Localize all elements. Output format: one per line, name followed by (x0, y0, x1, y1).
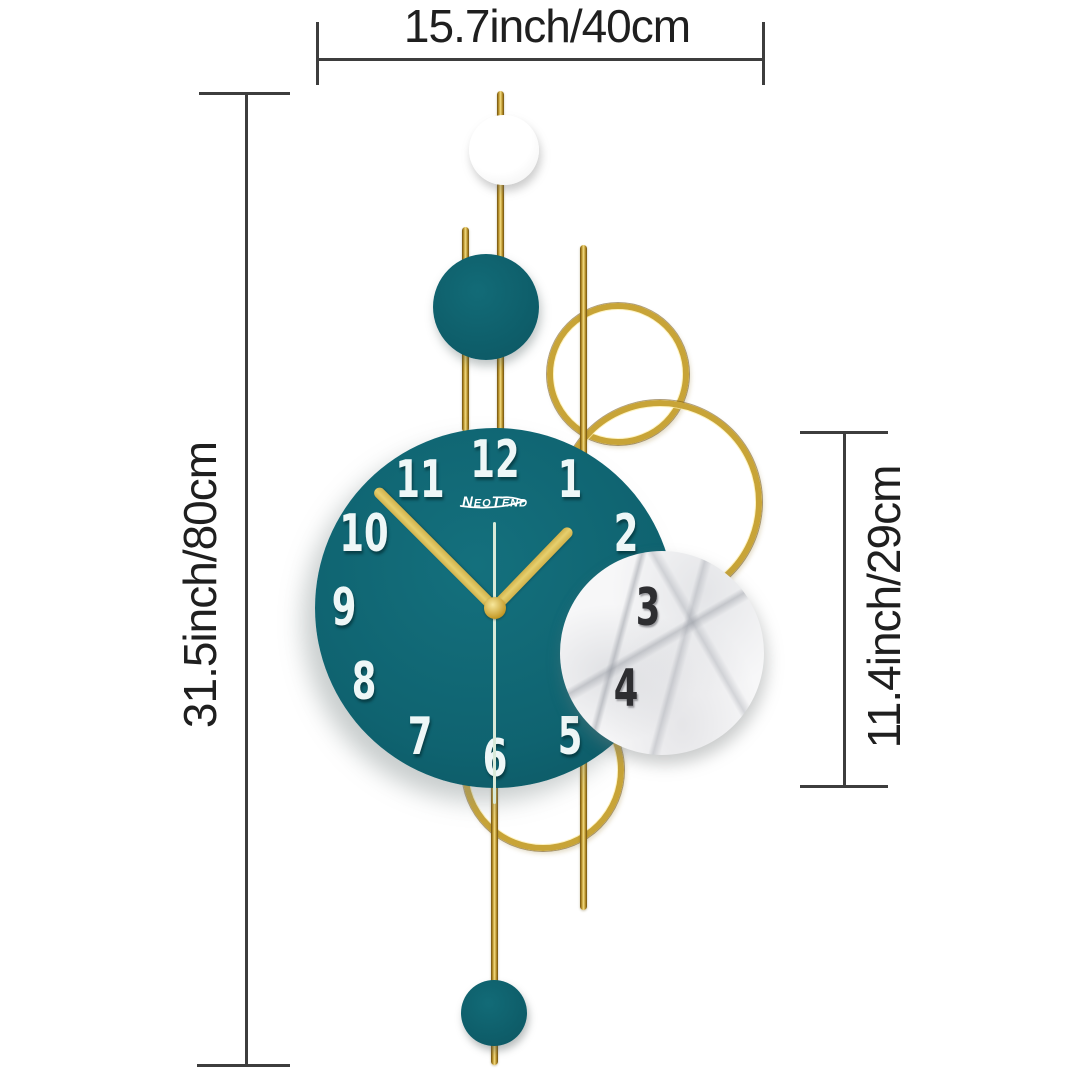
clock-numeral-2: 2 (614, 508, 639, 560)
clock-numeral-8: 8 (352, 656, 377, 708)
clock-numeral-10: 10 (339, 508, 388, 560)
second-hand (493, 522, 496, 804)
height-dimension-cap-top (199, 92, 290, 95)
clock-numeral-1: 1 (558, 454, 583, 506)
brand-logo: NeoTend (462, 494, 528, 511)
height-dimension-cap-bottom (197, 1064, 290, 1067)
width-dimension-line (317, 58, 764, 61)
clock-numeral-5: 5 (558, 711, 583, 763)
clock-center-hub (484, 597, 506, 619)
teal-accent-disc (433, 254, 539, 360)
product-dimension-diagram: 15.7inch/40cm 31.5inch/80cm 11.4inch/29c… (0, 0, 1080, 1080)
marble-accent-disc: 3 4 (560, 551, 764, 755)
hour-hand (491, 525, 575, 612)
clock-numeral-11: 11 (395, 454, 444, 506)
clock-height-dimension-cap-top (800, 431, 888, 434)
width-dimension-tick-right (762, 22, 765, 85)
height-dimension-line (245, 93, 248, 1067)
width-dimension-tick-left (316, 22, 319, 85)
clock-height-dimension-line (843, 432, 846, 788)
clock-numeral-12: 12 (470, 434, 519, 486)
height-dimension-label: 31.5inch/80cm (173, 442, 227, 728)
clock-numeral-9: 9 (332, 582, 357, 634)
clock-numeral-7: 7 (408, 711, 433, 763)
width-dimension-label: 15.7inch/40cm (404, 0, 690, 53)
clock-numeral-3: 3 (636, 582, 661, 634)
brand-logo-text: NeoTend (462, 494, 528, 511)
white-accent-disc (469, 115, 539, 185)
clock-height-dimension-cap-bottom (800, 785, 888, 788)
clock-height-dimension-label: 11.4inch/29cm (857, 466, 911, 749)
clock-numeral-4: 4 (614, 663, 639, 715)
pendulum-bob (461, 980, 527, 1046)
